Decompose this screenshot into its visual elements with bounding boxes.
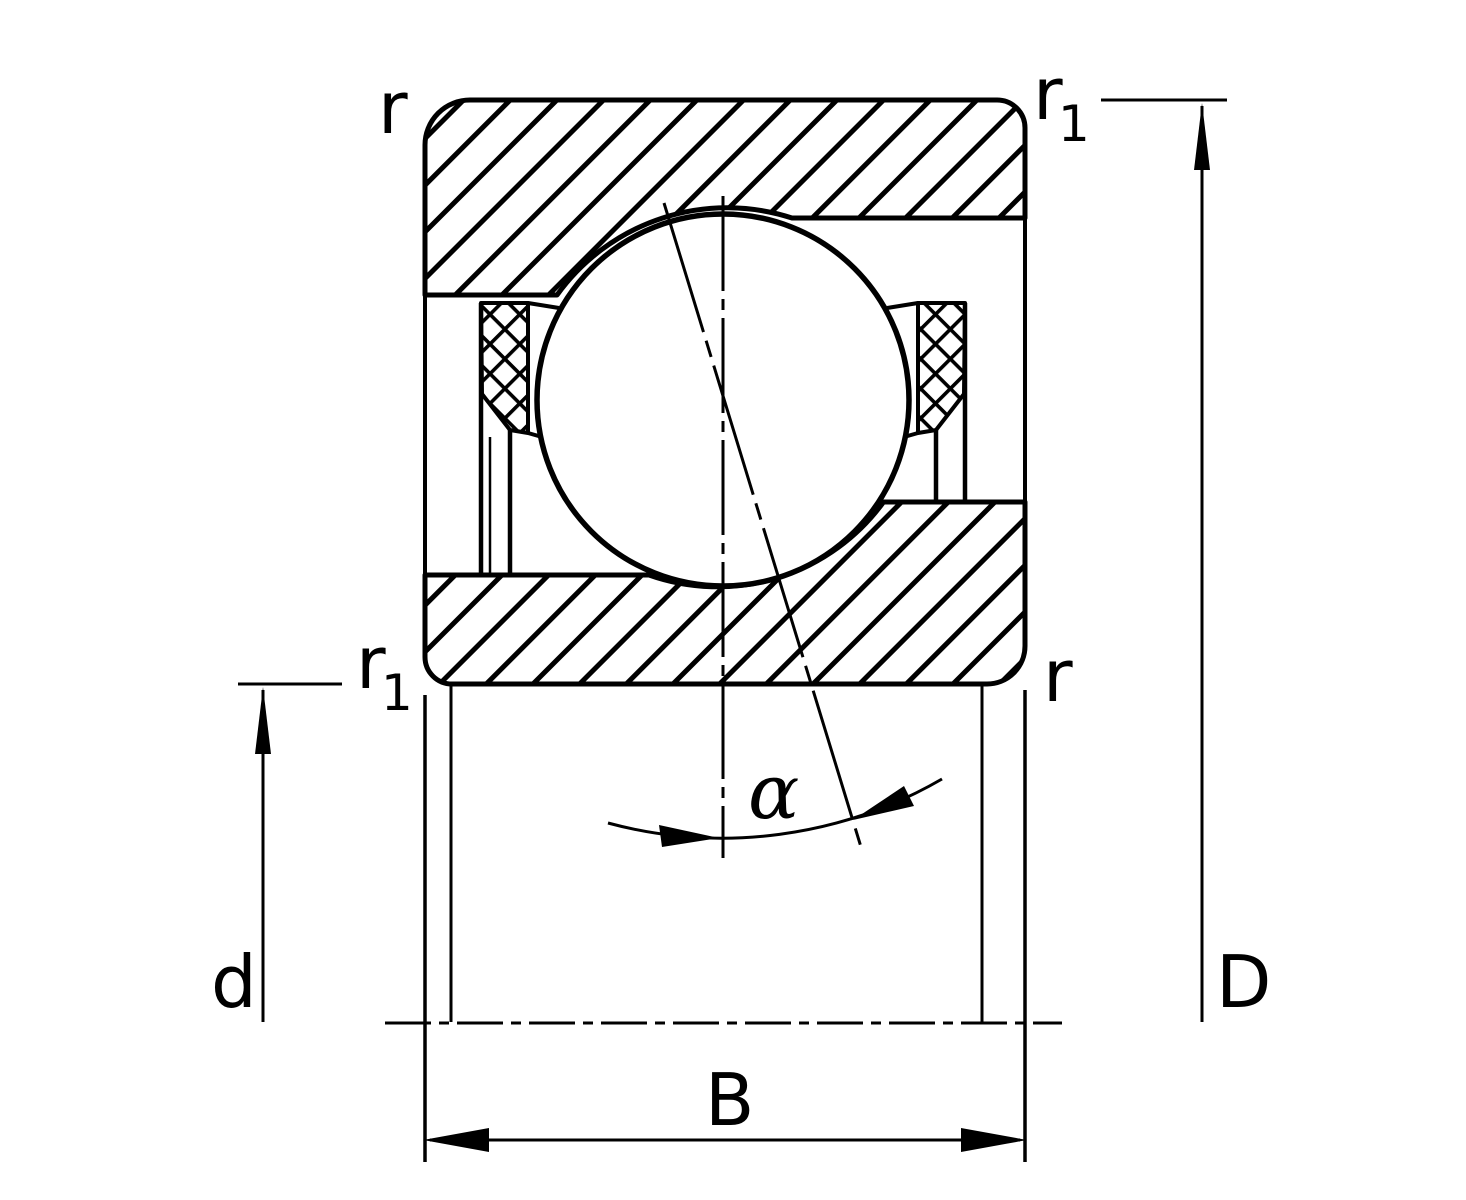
- svg-text:1: 1: [1058, 95, 1090, 153]
- label-r-mid-right: r: [1043, 634, 1073, 718]
- label-r-top-left: r: [378, 66, 408, 150]
- bearing-cross-section-diagram: r r 1 r 1 r d D B α: [0, 0, 1466, 1200]
- svg-text:1: 1: [381, 664, 413, 722]
- label-d: d: [211, 940, 257, 1024]
- label-B: B: [705, 1058, 754, 1142]
- label-D: D: [1216, 940, 1271, 1024]
- label-alpha: α: [748, 747, 799, 836]
